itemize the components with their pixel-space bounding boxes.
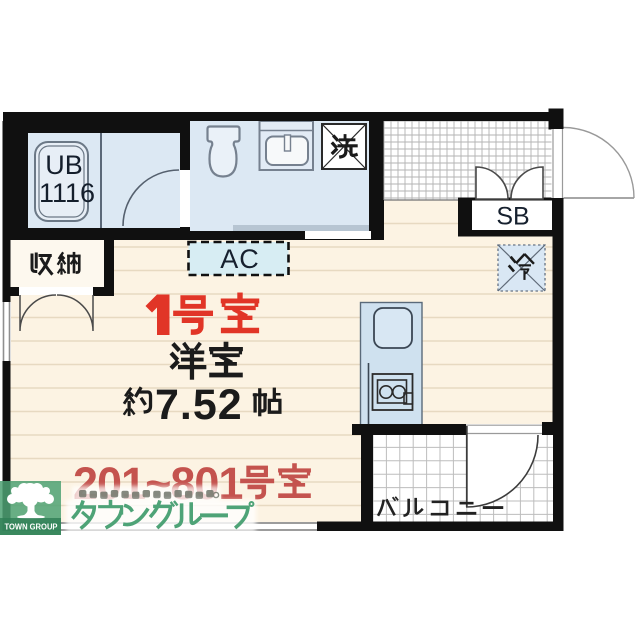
svg-text:UB: UB <box>45 150 83 180</box>
svg-text:7.52: 7.52 <box>155 381 243 429</box>
svg-text:AC: AC <box>220 244 260 274</box>
svg-text:1116: 1116 <box>39 178 95 208</box>
svg-text:SB: SB <box>496 203 529 231</box>
svg-text:TOWN GROUP: TOWN GROUP <box>5 523 59 532</box>
